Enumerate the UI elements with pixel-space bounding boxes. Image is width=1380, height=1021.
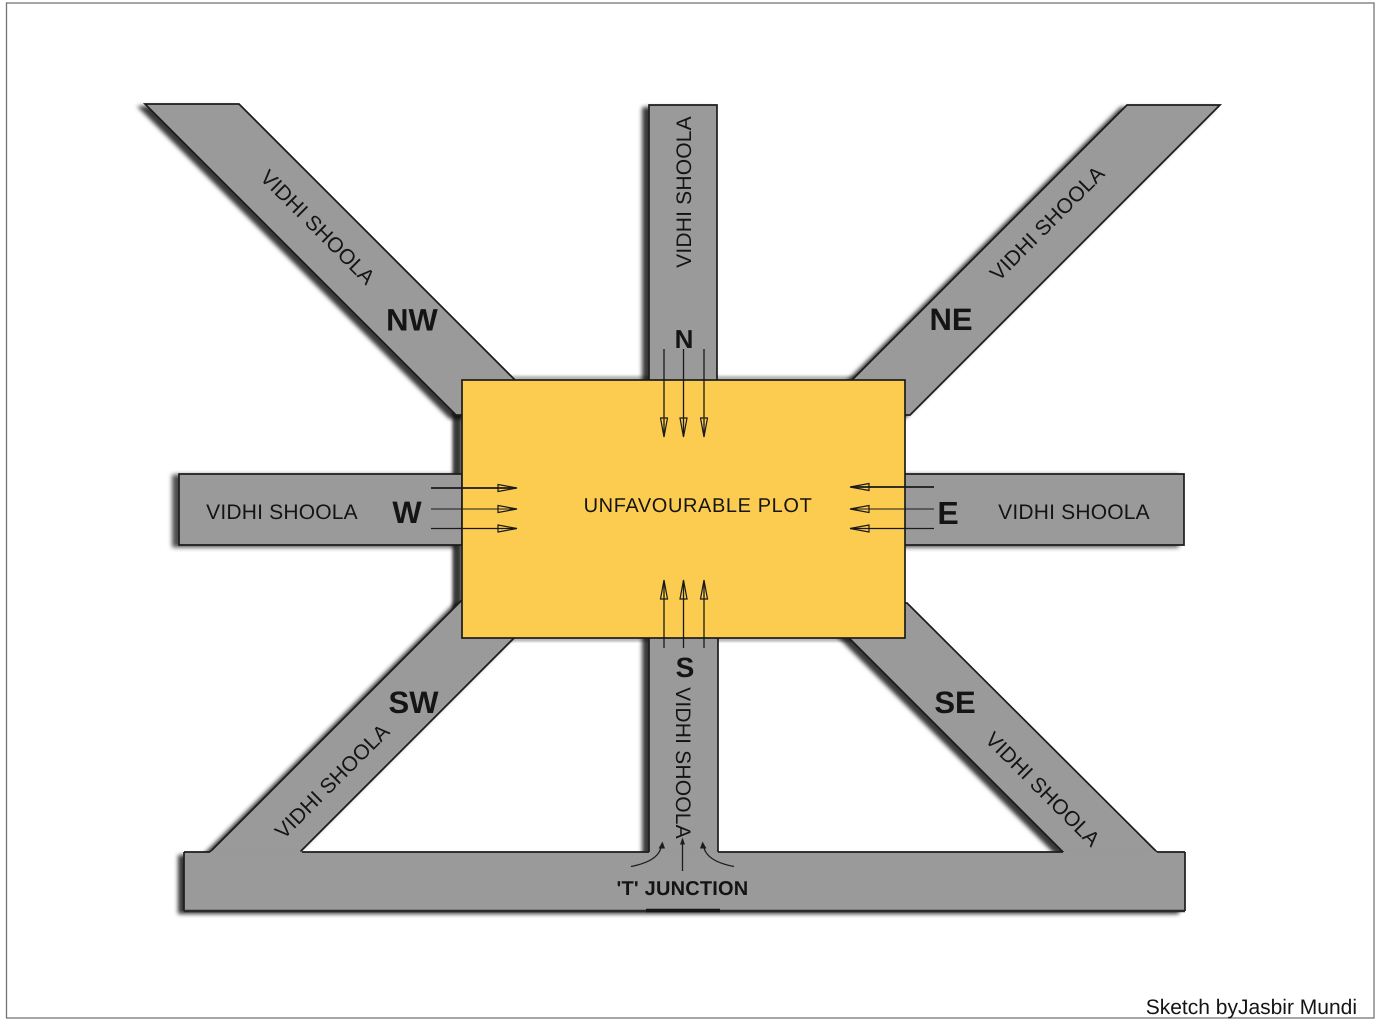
- svg-text:NW: NW: [386, 303, 438, 338]
- svg-text:S: S: [676, 652, 695, 683]
- svg-text:Sketch byJasbir Mundi: Sketch byJasbir Mundi: [1146, 996, 1357, 1019]
- svg-text:VIDHI SHOOLA: VIDHI SHOOLA: [206, 501, 358, 524]
- svg-text:NE: NE: [929, 302, 972, 337]
- svg-text:W: W: [392, 495, 422, 530]
- svg-text:'T' JUNCTION: 'T' JUNCTION: [617, 878, 749, 900]
- svg-text:N: N: [675, 324, 694, 354]
- svg-text:E: E: [937, 495, 958, 531]
- svg-text:UNFAVOURABLE PLOT: UNFAVOURABLE PLOT: [584, 495, 813, 517]
- svg-text:SW: SW: [389, 685, 440, 720]
- svg-text:SE: SE: [934, 685, 975, 720]
- svg-text:VIDHI SHOOLA: VIDHI SHOOLA: [673, 116, 696, 268]
- svg-text:VIDHI SHOOLA: VIDHI SHOOLA: [671, 687, 694, 839]
- svg-text:VIDHI SHOOLA: VIDHI SHOOLA: [998, 501, 1150, 524]
